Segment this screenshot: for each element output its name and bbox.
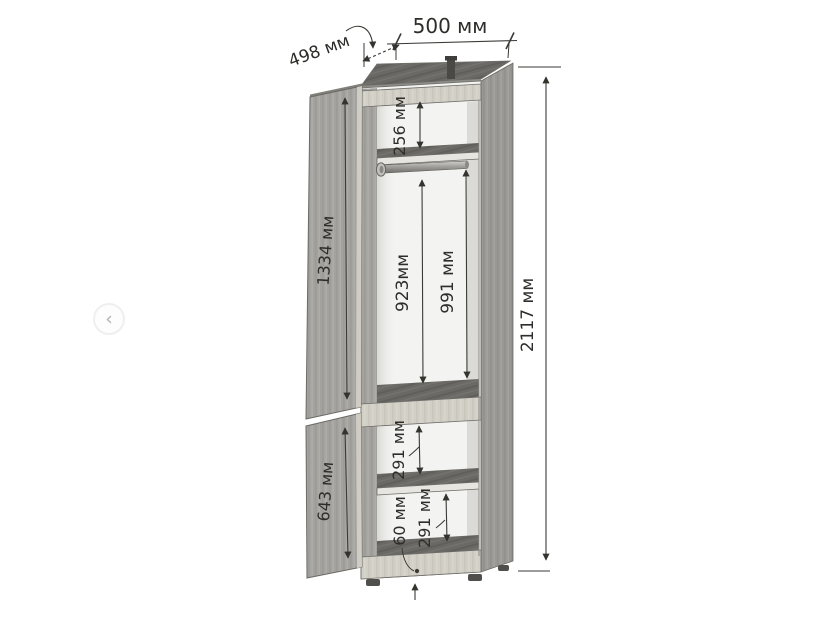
hanging-space-label: 991 мм xyxy=(438,250,458,314)
middle-shelf xyxy=(361,379,481,427)
dimension-height: 2117 мм xyxy=(518,67,561,571)
plinth-height-label: 60 мм xyxy=(390,496,409,546)
cabinet-body xyxy=(361,56,513,586)
carousel-prev-button[interactable]: ‹ xyxy=(93,303,125,335)
width-label: 500 мм xyxy=(413,14,488,38)
mid-shelf-space-label: 291 мм xyxy=(389,420,408,480)
rod-clearance-label: 923мм xyxy=(393,254,413,312)
upper-door-edge xyxy=(356,86,362,408)
top-shelf-space-label: 256 мм xyxy=(390,96,409,156)
height-label: 2117 мм xyxy=(518,278,538,352)
product-drawing-page: ‹ xyxy=(0,0,820,640)
lower-door-edge xyxy=(356,413,362,568)
right-side-panel-shading xyxy=(481,63,513,572)
left-side-wall xyxy=(361,88,377,579)
chevron-left-icon: ‹ xyxy=(105,310,113,329)
bottom-shelf-space-label: 291 мм xyxy=(415,488,434,548)
depth-label: 498 мм xyxy=(286,31,353,72)
dimension-width: 500 мм xyxy=(387,14,517,60)
